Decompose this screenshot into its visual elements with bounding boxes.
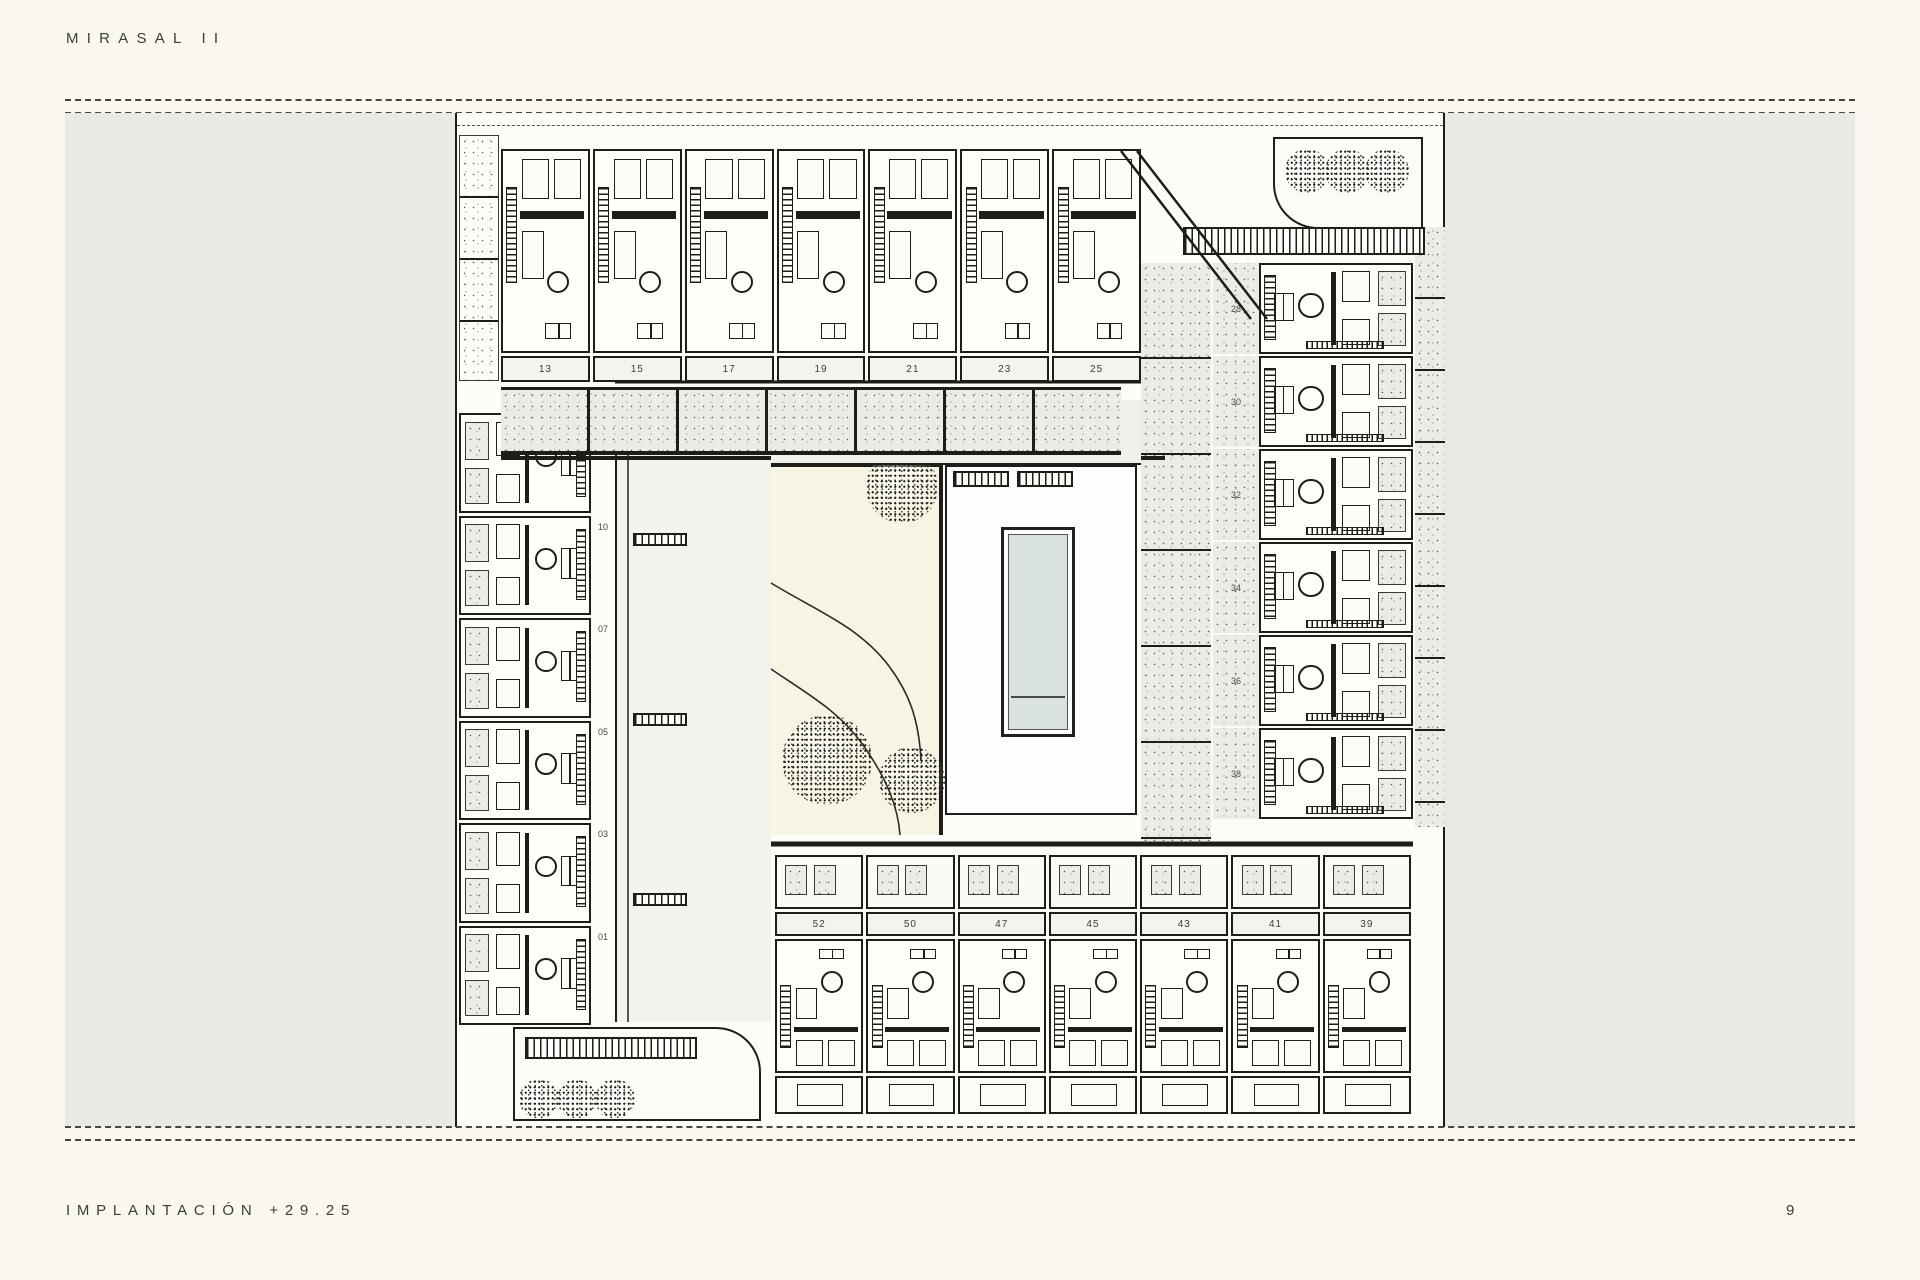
housing-unit: 01 — [459, 926, 613, 1026]
tree-icon — [1365, 149, 1409, 193]
table-icon — [1299, 479, 1325, 505]
unit-number: 34 — [1213, 542, 1259, 633]
unit-number: 21 — [868, 356, 957, 382]
unit-number: 39 — [1323, 912, 1411, 936]
room — [1101, 1040, 1128, 1066]
housing-unit: 39 — [1323, 855, 1411, 1119]
housing-unit: 21 — [868, 149, 957, 383]
housing-unit: 41 — [1231, 855, 1319, 1119]
unit-floorplan — [777, 149, 866, 353]
table-icon — [823, 271, 845, 293]
patio-planter — [814, 865, 836, 895]
housing-unit: 34 — [1213, 542, 1413, 633]
room — [887, 988, 909, 1019]
patio-planter — [1242, 865, 1264, 895]
unit-floorplan — [501, 149, 590, 353]
unit-number: 32 — [1213, 449, 1259, 540]
furniture — [913, 323, 938, 339]
table-icon — [1299, 386, 1325, 412]
table-icon — [1277, 971, 1299, 993]
room — [796, 988, 818, 1019]
walkway-strip — [1141, 263, 1211, 841]
table-icon — [915, 271, 937, 293]
room — [522, 159, 549, 199]
boundary-dashed-line — [65, 1139, 1855, 1141]
pool-deck — [945, 465, 1137, 815]
patio — [866, 855, 954, 909]
garage — [1231, 1076, 1319, 1114]
pergola-icon — [953, 471, 1009, 487]
wall — [525, 730, 529, 810]
patio — [1378, 550, 1407, 585]
patio — [465, 468, 489, 504]
room — [1375, 1040, 1402, 1066]
patio — [1378, 736, 1407, 771]
unit-floorplan — [1049, 939, 1137, 1073]
unit-number: 47 — [958, 912, 1046, 936]
wall — [1071, 211, 1135, 219]
wall — [1331, 551, 1336, 624]
unit-number: 13 — [501, 356, 590, 382]
room — [1284, 1040, 1311, 1066]
wall — [525, 525, 529, 605]
table-icon — [535, 548, 557, 570]
stairs-icon — [1264, 368, 1276, 432]
access-corridor — [615, 400, 771, 1022]
room — [738, 159, 765, 199]
housing-unit: 03 — [459, 823, 613, 923]
unit-number: 45 — [1049, 912, 1137, 936]
furniture — [1275, 479, 1295, 507]
wall — [1068, 1027, 1132, 1032]
planting-strip — [1415, 227, 1445, 827]
stairs-icon — [874, 187, 885, 283]
room — [554, 159, 581, 199]
wall — [612, 211, 676, 219]
unit-number: 10 — [593, 516, 613, 616]
room — [981, 159, 1008, 199]
unit-floorplan — [1052, 149, 1141, 353]
unit-floorplan — [958, 939, 1046, 1073]
room — [1343, 988, 1365, 1019]
furniture — [1005, 323, 1030, 339]
wall — [525, 833, 529, 913]
room — [1069, 1040, 1096, 1066]
wall — [1331, 644, 1336, 717]
housing-unit: 19 — [777, 149, 866, 383]
unit-number: 19 — [777, 356, 866, 382]
table-icon — [731, 271, 753, 293]
patio — [1378, 643, 1407, 678]
wall — [885, 1027, 949, 1032]
tree-icon — [595, 1079, 635, 1119]
patio — [1378, 364, 1407, 399]
patio — [465, 729, 489, 767]
unit-floorplan — [1140, 939, 1228, 1073]
stairs-icon — [1328, 985, 1339, 1047]
patio — [465, 934, 489, 972]
furniture — [561, 651, 578, 682]
patio-planter — [1270, 865, 1292, 895]
wall — [1342, 1027, 1406, 1032]
pool-step — [1011, 696, 1064, 698]
stairs-icon — [1306, 434, 1384, 443]
unit-number: 03 — [593, 823, 613, 923]
unit-number: 41 — [1231, 912, 1319, 936]
patio-planter — [877, 865, 899, 895]
unit-number: 23 — [960, 356, 1049, 382]
stairs-icon — [598, 187, 609, 283]
housing-unit: 36 — [1213, 635, 1413, 726]
patio-planter — [785, 865, 807, 895]
room — [1193, 1040, 1220, 1066]
sheet-label: IMPLANTACIÓN +29.25 — [66, 1202, 356, 1219]
unit-number: 50 — [866, 912, 954, 936]
furniture — [1097, 323, 1122, 339]
room — [705, 231, 727, 279]
housing-unit: 43 — [1140, 855, 1228, 1119]
furniture — [1093, 949, 1118, 959]
room — [1073, 231, 1095, 279]
table-icon — [535, 958, 557, 980]
furniture — [819, 949, 844, 959]
patio — [465, 422, 489, 460]
garage — [1049, 1076, 1137, 1114]
wall — [1331, 458, 1336, 531]
room — [1342, 736, 1371, 767]
corridor-line — [627, 400, 629, 1022]
patio — [775, 855, 863, 909]
patio — [465, 627, 489, 665]
boundary-dashed-line — [65, 99, 1855, 101]
furniture — [637, 323, 662, 339]
stairs-icon — [1237, 985, 1248, 1047]
pool-water — [1008, 534, 1068, 730]
furniture — [545, 323, 570, 339]
page-number: 9 — [1786, 1202, 1794, 1219]
stairs-icon — [1306, 806, 1384, 815]
patio — [1049, 855, 1137, 909]
room — [889, 159, 916, 199]
tree-icon — [1325, 149, 1369, 193]
stairs-icon — [1264, 461, 1276, 525]
housing-unit: 07 — [459, 618, 613, 718]
room — [496, 524, 520, 558]
stairs-icon — [1264, 554, 1276, 618]
room — [887, 1040, 914, 1066]
unit-floorplan — [1259, 263, 1413, 354]
patio-planter — [968, 865, 990, 895]
stairs-icon — [690, 187, 701, 283]
furniture — [561, 548, 578, 579]
stairs-icon — [1264, 275, 1276, 339]
furniture — [1184, 949, 1209, 959]
unit-floorplan — [1259, 449, 1413, 540]
wall — [520, 211, 584, 219]
unit-floorplan — [868, 149, 957, 353]
unit-number: 25 — [1052, 356, 1141, 382]
swimming-pool — [1001, 527, 1075, 737]
patio-planter — [1179, 865, 1201, 895]
unit-number: 07 — [593, 618, 613, 718]
patio — [465, 570, 489, 606]
bottom-unit-row: 52 — [775, 855, 1411, 1119]
room — [496, 832, 520, 866]
housing-unit: 13 — [501, 149, 590, 383]
unit-floorplan — [459, 618, 591, 718]
room — [1342, 457, 1371, 488]
unit-floorplan — [459, 721, 591, 821]
table-icon — [1299, 665, 1325, 691]
tree-icon — [557, 1079, 597, 1119]
furniture — [1275, 386, 1295, 414]
room — [981, 231, 1003, 279]
room — [829, 159, 856, 199]
unit-floorplan — [459, 926, 591, 1026]
room — [797, 231, 819, 279]
stairs-icon — [633, 893, 687, 906]
setback-dashed-line — [457, 125, 1443, 126]
patio — [465, 878, 489, 914]
stairs-icon — [780, 985, 791, 1047]
unit-floorplan — [1259, 542, 1413, 633]
stairs-icon — [966, 187, 977, 283]
drawing-sheet: MIRASAL II — [0, 0, 1920, 1280]
stairs-icon — [1306, 341, 1384, 350]
table-icon — [1299, 293, 1325, 319]
stairs-icon — [782, 187, 793, 283]
patio — [465, 832, 489, 870]
room — [496, 729, 520, 763]
parking-stalls — [525, 1037, 697, 1059]
wall — [1331, 365, 1336, 438]
room — [1342, 643, 1371, 674]
stairs-icon — [633, 713, 687, 726]
stairs-icon — [872, 985, 883, 1047]
wall — [1331, 272, 1336, 345]
patio — [465, 775, 489, 811]
room — [978, 1040, 1005, 1066]
unit-number: 36 — [1213, 635, 1259, 726]
pergola-icon — [1017, 471, 1073, 487]
stairs-icon — [506, 187, 517, 283]
housing-unit: 47 — [958, 855, 1046, 1119]
housing-unit: 50 — [866, 855, 954, 1119]
table-icon — [1095, 971, 1117, 993]
left-unit-column: 12 10 — [459, 413, 613, 1025]
room — [1343, 1040, 1370, 1066]
room — [797, 159, 824, 199]
unit-number: 52 — [775, 912, 863, 936]
wall — [525, 935, 529, 1015]
table-icon — [639, 271, 661, 293]
furniture — [910, 949, 935, 959]
room — [1013, 159, 1040, 199]
room — [1105, 159, 1132, 199]
housing-unit: 45 — [1049, 855, 1137, 1119]
tree-icon — [519, 1079, 559, 1119]
room — [705, 159, 732, 199]
room — [1252, 988, 1274, 1019]
table-icon — [1006, 271, 1028, 293]
stairs-icon — [1264, 647, 1276, 711]
room — [796, 1040, 823, 1066]
unit-number: 17 — [685, 356, 774, 382]
stairs-icon — [1054, 985, 1065, 1047]
patio-planter — [1088, 865, 1110, 895]
room — [1010, 1040, 1037, 1066]
stairs-icon — [576, 836, 586, 907]
housing-unit: 32 — [1213, 449, 1413, 540]
room — [496, 627, 520, 661]
right-unit-column: 28 30 — [1213, 263, 1413, 819]
patio — [1231, 855, 1319, 909]
patio-planter — [905, 865, 927, 895]
room — [496, 934, 520, 968]
room — [1073, 159, 1100, 199]
table-icon — [1003, 971, 1025, 993]
room — [978, 988, 1000, 1019]
furniture — [1002, 949, 1027, 959]
table-icon — [547, 271, 569, 293]
room — [614, 231, 636, 279]
room — [1252, 1040, 1279, 1066]
room — [1342, 364, 1371, 395]
unit-number: 15 — [593, 356, 682, 382]
housing-unit: 05 — [459, 721, 613, 821]
room — [1342, 550, 1371, 581]
garage — [958, 1076, 1046, 1114]
patio-planter — [1059, 865, 1081, 895]
site-plan: 13 15 — [455, 113, 1445, 1127]
unit-floorplan — [459, 516, 591, 616]
wall — [1159, 1027, 1223, 1032]
stairs-icon — [1306, 713, 1384, 722]
patio-planter — [1333, 865, 1355, 895]
room — [614, 159, 641, 199]
stairs-icon — [633, 533, 687, 546]
housing-unit: 30 — [1213, 356, 1413, 447]
planting-strip — [459, 135, 499, 381]
table-icon — [1299, 572, 1325, 598]
unit-floorplan — [593, 149, 682, 353]
unit-floorplan — [866, 939, 954, 1073]
room — [646, 159, 673, 199]
parking-corridor — [501, 387, 1121, 455]
stairs-icon — [576, 529, 586, 600]
tree-icon — [782, 715, 872, 805]
housing-unit: 25 — [1052, 149, 1141, 383]
wall — [1331, 737, 1336, 810]
room — [496, 884, 520, 913]
tree-icon — [1285, 149, 1329, 193]
room — [1069, 988, 1091, 1019]
housing-unit: 28 — [1213, 263, 1413, 354]
unit-floorplan — [1231, 939, 1319, 1073]
unit-floorplan — [685, 149, 774, 353]
furniture — [561, 856, 578, 887]
stairs-icon — [576, 631, 586, 702]
patio-planter — [1362, 865, 1384, 895]
housing-unit: 52 — [775, 855, 863, 1119]
garage — [1140, 1076, 1228, 1114]
garage — [1323, 1076, 1411, 1114]
room — [919, 1040, 946, 1066]
stairs-icon — [576, 939, 586, 1010]
table-icon — [1186, 971, 1208, 993]
unit-floorplan — [1323, 939, 1411, 1073]
table-icon — [535, 753, 557, 775]
housing-unit: 23 — [960, 149, 1049, 383]
room — [522, 231, 544, 279]
table-icon — [1098, 271, 1120, 293]
housing-unit: 17 — [685, 149, 774, 383]
room — [1161, 988, 1183, 1019]
furniture — [1275, 572, 1295, 600]
unit-number: 38 — [1213, 728, 1259, 819]
room — [889, 231, 911, 279]
housing-unit: 38 — [1213, 728, 1413, 819]
wall — [794, 1027, 858, 1032]
stairs-icon — [963, 985, 974, 1047]
room — [496, 782, 520, 811]
garage — [775, 1076, 863, 1114]
room — [496, 577, 520, 606]
room — [828, 1040, 855, 1066]
unit-number: 30 — [1213, 356, 1259, 447]
patio — [958, 855, 1046, 909]
table-icon — [1299, 758, 1325, 784]
patio — [1378, 457, 1407, 492]
room — [1161, 1040, 1188, 1066]
room — [496, 679, 520, 708]
unit-floorplan — [1259, 635, 1413, 726]
unit-number: 05 — [593, 721, 613, 821]
housing-unit: 15 — [593, 149, 682, 383]
furniture — [561, 958, 578, 989]
top-unit-row: 13 15 — [501, 149, 1141, 383]
wall — [1250, 1027, 1314, 1032]
furniture — [729, 323, 754, 339]
furniture — [821, 323, 846, 339]
tree-icon — [879, 747, 945, 813]
table-icon — [821, 971, 843, 993]
furniture — [561, 753, 578, 784]
stairs-icon — [1306, 527, 1384, 536]
room — [1342, 271, 1371, 302]
unit-floorplan — [459, 823, 591, 923]
unit-floorplan — [1259, 728, 1413, 819]
table-icon — [535, 856, 557, 878]
stairs-icon — [1145, 985, 1156, 1047]
patio — [465, 673, 489, 709]
table-icon — [912, 971, 934, 993]
table-icon — [535, 651, 557, 673]
stairs-icon — [576, 734, 586, 805]
wall — [976, 1027, 1040, 1032]
housing-unit: 10 — [459, 516, 613, 616]
wall — [796, 211, 860, 219]
boundary-dashed-line — [65, 1126, 1855, 1128]
patio — [465, 980, 489, 1016]
patio-planter — [997, 865, 1019, 895]
patio — [1140, 855, 1228, 909]
wall — [525, 628, 529, 708]
unit-number: 43 — [1140, 912, 1228, 936]
furniture — [1275, 293, 1295, 321]
patio — [1323, 855, 1411, 909]
room — [496, 987, 520, 1016]
